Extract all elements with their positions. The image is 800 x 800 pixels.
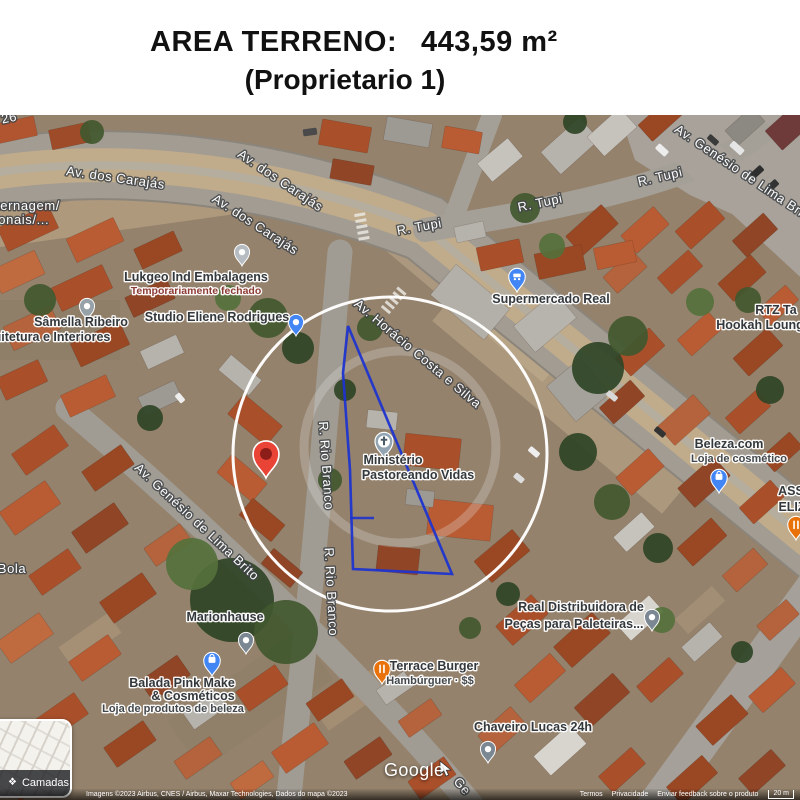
poi-label-balada-pink[interactable]: & Cosméticos <box>151 689 234 703</box>
area-label: AREA TERRENO: <box>150 26 397 59</box>
attribution-link[interactable]: Termos <box>580 791 603 798</box>
poi-label-lukgeo[interactable]: Lukgeo Ind Embalagens <box>124 270 268 284</box>
imagery-credit: Imagens ©2023 Airbus, CNES / Airbus, Max… <box>86 791 348 798</box>
poi-label-ass-eliz[interactable]: ASS <box>778 484 800 498</box>
scale-text: 20 m <box>768 790 794 799</box>
poi-label-balada-pink[interactable]: Balada Pink Make <box>129 676 235 690</box>
poi-label-marionhause[interactable]: Marionhause <box>186 610 263 624</box>
attribution-links: TermosPrivacidadeEnviar feedback sobre o… <box>580 791 759 798</box>
attribution-link[interactable]: Enviar feedback sobre o produto <box>657 791 758 798</box>
page: AREA TERRENO: 443,59 m² (Proprietario 1)… <box>0 0 800 800</box>
street-label: ternagem/ <box>0 198 60 213</box>
poi-label-chaveiro-lucas[interactable]: Chaveiro Lucas 24h <box>474 720 592 734</box>
area-line: AREA TERRENO: 443,59 m² <box>0 26 800 62</box>
poi-label-samella[interactable]: uitetura e Interiores <box>0 330 110 344</box>
header: AREA TERRENO: 443,59 m² (Proprietario 1) <box>0 0 800 115</box>
satellite-map[interactable]: Av. dos CarajásAv. dos CarajásAv. dos Ca… <box>0 115 800 800</box>
poi-label-ass-eliz[interactable]: ELIZ <box>778 500 800 514</box>
poi-label-rtz-hookah[interactable]: Hookah Loung <box>716 318 800 332</box>
layers-icon: ❖ <box>8 778 17 788</box>
poi-label-ministerio[interactable]: Ministério <box>363 453 422 467</box>
poi-label-terrace-burger[interactable]: Terrace Burger <box>390 659 479 673</box>
poi-label-rtz-hookah[interactable]: RTZ Ta <box>755 303 797 317</box>
attribution-link[interactable]: Privacidade <box>612 791 649 798</box>
poi-label-studio-eliene[interactable]: Studio Eliene Rodrigues <box>145 310 290 324</box>
poi-label-terrace-burger[interactable]: Hambúrguer · $$ <box>386 675 473 687</box>
poi-label-ministerio[interactable]: Pastoreando Vidas <box>362 468 474 482</box>
owner-label: (Proprietario 1) <box>0 64 690 96</box>
poi-label-real-distribuidora[interactable]: Peças para Paleteiras... <box>505 617 644 631</box>
google-watermark[interactable]: Google <box>384 760 444 781</box>
poi-label-samella[interactable]: Sâmella Ribeiro <box>34 315 128 329</box>
poi-label-real-distribuidora[interactable]: Real Distribuidora de <box>518 600 644 614</box>
poi-label-supermercado-real[interactable]: Supermercado Real <box>492 292 609 306</box>
street-label: ionais/... <box>0 212 49 227</box>
map-canvas[interactable]: Av. dos CarajásAv. dos CarajásAv. dos Ca… <box>0 115 800 800</box>
area-value: 443,59 m² <box>421 26 558 59</box>
poi-label-beleza-com[interactable]: Loja de cosmético <box>691 453 787 465</box>
poi-label-lukgeo[interactable]: Temporariamente fechado <box>131 285 262 297</box>
layers-label: Camadas <box>22 777 69 789</box>
poi-label-beleza-com[interactable]: Beleza.com <box>695 437 764 451</box>
poi-label-balada-pink[interactable]: Loja de produtos de beleza <box>102 703 245 715</box>
attribution-bar: Imagens ©2023 Airbus, CNES / Airbus, Max… <box>0 789 800 800</box>
street-label: Bola <box>0 561 26 576</box>
layers-control[interactable]: ❖ Camadas <box>0 719 72 798</box>
